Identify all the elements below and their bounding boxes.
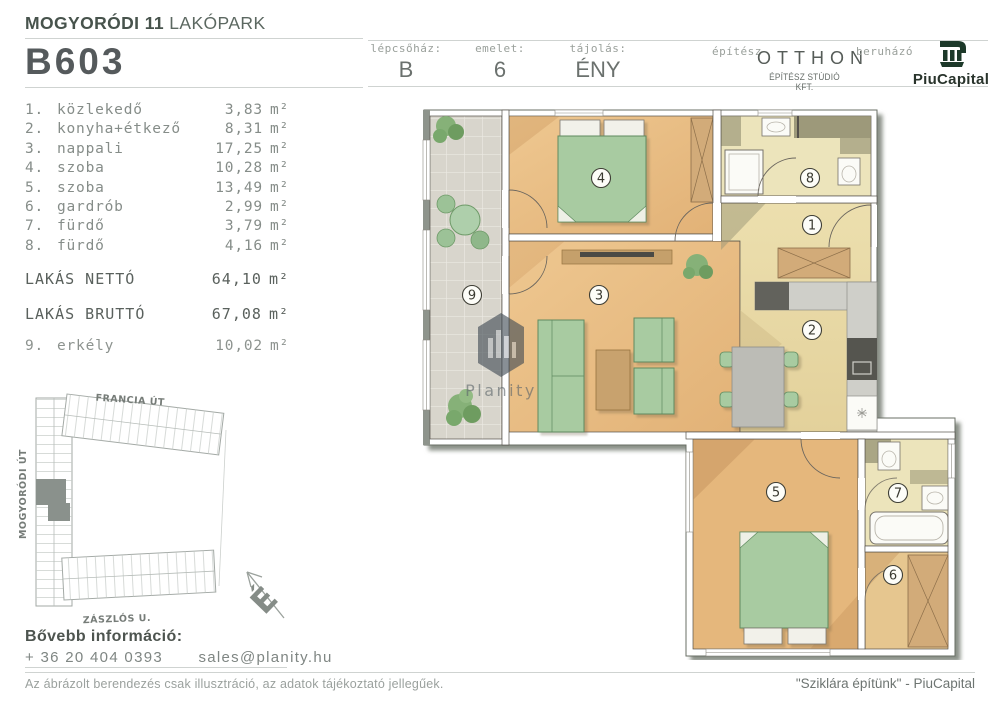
gross-area: 67,08 <box>212 305 262 323</box>
room-name: gardrób <box>57 199 225 215</box>
gross-area-row: LAKÁS BRUTTÓ67,08m² <box>25 305 289 327</box>
floor-cell: emelet: 6 <box>452 42 548 83</box>
orientation-cell: tájolás: ÉNY <box>550 42 646 83</box>
bath7-toilet <box>878 442 900 470</box>
room-num: 8. <box>25 238 57 254</box>
plan-label-2: 2 <box>808 324 816 339</box>
bath8-toilet <box>838 158 860 185</box>
unit-code: B603 <box>25 41 125 83</box>
room-name: szoba <box>57 180 215 196</box>
room-unit: m² <box>270 238 289 254</box>
room-unit: m² <box>270 160 289 176</box>
orientation-value: ÉNY <box>550 57 646 83</box>
contact-phone: + 36 20 404 0393 <box>25 649 163 666</box>
contact-divider <box>25 667 287 668</box>
header-band-top-rule <box>368 40 988 41</box>
room-unit: m² <box>270 121 289 137</box>
project-title-bold: MOGYORÓDI 11 <box>25 13 164 33</box>
room-row: 2.konyha+étkező8,31m² <box>25 121 289 140</box>
room-unit: m² <box>270 141 289 157</box>
street-bottom-label: ZÁSZLÓS U. <box>83 612 152 626</box>
room-row: 1.közlekedő3,83m² <box>25 102 289 121</box>
piucapital-column-icon <box>928 38 974 70</box>
gross-unit: m² <box>269 305 289 323</box>
plan-label-5: 5 <box>772 486 780 501</box>
plan-label-8: 8 <box>806 172 814 187</box>
room-row: 8.fürdő4,16m² <box>25 238 289 257</box>
site-bottom-wing <box>62 550 216 600</box>
courtyard-line <box>219 430 226 586</box>
unit-code-divider <box>25 87 363 88</box>
room-num: 7. <box>25 218 57 234</box>
tv <box>580 252 654 257</box>
room-bath-8 <box>721 116 871 196</box>
staircase-label: lépcsőház: <box>358 42 454 55</box>
orientation-label: tájolás: <box>550 42 646 55</box>
room-area: 13,49 <box>215 180 263 196</box>
room-num: 5. <box>25 180 57 196</box>
room-name: konyha+étkező <box>57 121 225 137</box>
room-num: 9. <box>25 338 57 354</box>
room-unit: m² <box>270 180 289 196</box>
room-area: 3,79 <box>225 218 263 234</box>
plan-label-9: 9 <box>468 289 476 304</box>
room-bedroom-4 <box>509 116 713 234</box>
contact-email: sales@planity.hu <box>198 649 332 666</box>
room-area: 3,83 <box>225 102 263 118</box>
room-row: 5.szoba13,49m² <box>25 180 289 199</box>
room-list: 1.közlekedő3,83m² 2.konyha+étkező8,31m² … <box>25 102 289 358</box>
room-name: közlekedő <box>57 102 225 118</box>
room-wardrobe-6 <box>865 552 948 649</box>
room-num: 1. <box>25 102 57 118</box>
plan-label-4: 4 <box>597 172 605 187</box>
room-name: szoba <box>57 160 215 176</box>
compass: É <box>243 572 286 621</box>
room-num: 6. <box>25 199 57 215</box>
room-area: 10,02 <box>215 338 263 354</box>
floor-value: 6 <box>452 57 548 83</box>
footer-divider <box>25 672 975 673</box>
architect-label: építész <box>712 45 762 58</box>
net-area: 64,10 <box>212 270 262 288</box>
room-row: 7.fürdő3,79m² <box>25 218 289 237</box>
header-band-bottom-rule <box>368 86 988 87</box>
room-num: 3. <box>25 141 57 157</box>
room-name: erkély <box>57 338 215 354</box>
room-row: 6.gardrób2,99m² <box>25 199 289 218</box>
project-title: MOGYORÓDI 11 LAKÓPARK <box>25 13 266 34</box>
room-bedroom-5 <box>693 439 858 649</box>
net-label: LAKÁS NETTÓ <box>25 270 135 288</box>
armchair-2 <box>634 368 674 414</box>
room-unit: m² <box>270 102 289 118</box>
room-num: 4. <box>25 160 57 176</box>
disclaimer-text: Az ábrázolt berendezés csak illusztráció… <box>25 677 444 691</box>
staircase-value: B <box>358 57 454 83</box>
architect-subtitle: ÉPÍTÉSZ STÚDIÓ KFT. <box>761 72 848 92</box>
street-left-label: MOGYORÓDI ÚT <box>17 449 29 539</box>
room-unit: m² <box>270 338 289 354</box>
floor-label: emelet: <box>452 42 548 55</box>
room-area: 8,31 <box>225 121 263 137</box>
dining-table <box>732 347 784 427</box>
title-divider <box>25 38 363 39</box>
architect-name: OTTHON <box>757 48 852 69</box>
armchair-1 <box>634 318 674 362</box>
contact-heading: Bővebb információ: <box>25 628 182 646</box>
room-name: fürdő <box>57 218 225 234</box>
plan-label-6: 6 <box>889 569 897 584</box>
site-map: FRANCIA ÚT MOGYORÓDI ÚT ZÁSZLÓS U. É <box>12 386 304 632</box>
plan-label-3: 3 <box>595 289 603 304</box>
bath8-sink <box>762 118 790 136</box>
net-area-row: LAKÁS NETTÓ64,10m² <box>25 270 289 292</box>
developer-name: PiuCapital <box>908 71 994 88</box>
contact-line: + 36 20 404 0393 sales@planity.hu <box>25 649 333 666</box>
compass-north-letter: É <box>243 579 286 621</box>
developer-logo: PiuCapital <box>908 38 994 88</box>
coffee-table <box>596 350 630 410</box>
room-row: 3.nappali17,25m² <box>25 141 289 160</box>
room-area: 10,28 <box>215 160 263 176</box>
room-name: nappali <box>57 141 215 157</box>
room-living-3 <box>509 241 740 432</box>
plan-label-1: 1 <box>808 219 816 234</box>
floor-plan: Planity 1 2 3 4 5 6 7 8 9 <box>410 100 970 660</box>
watermark-text: Planity <box>465 381 537 400</box>
bed-room5 <box>740 532 828 644</box>
shower <box>725 150 763 194</box>
flyer-page: MOGYORÓDI 11 LAKÓPARK B603 lépcsőház: B … <box>0 0 1000 707</box>
architect-logo: OTTHON ÉPÍTÉSZ STÚDIÓ KFT. <box>757 48 852 92</box>
plan-label-7: 7 <box>894 487 902 502</box>
room-area: 4,16 <box>225 238 263 254</box>
gross-label: LAKÁS BRUTTÓ <box>25 305 145 323</box>
room-unit: m² <box>270 218 289 234</box>
hall-and-kitchen <box>720 203 877 432</box>
net-unit: m² <box>269 270 289 288</box>
room-area: 17,25 <box>215 141 263 157</box>
room-row: 4.szoba10,28m² <box>25 160 289 179</box>
project-title-light: LAKÓPARK <box>169 13 265 33</box>
room-name: fürdő <box>57 238 225 254</box>
developer-label: beruházó <box>856 45 913 58</box>
balcony-row: 9.erkély10,02m² <box>25 338 289 357</box>
fridge <box>755 282 789 310</box>
room-area: 2,99 <box>225 199 263 215</box>
staircase-cell: lépcsőház: B <box>358 42 454 83</box>
room-num: 2. <box>25 121 57 137</box>
room-unit: m² <box>270 199 289 215</box>
bath7-sink <box>922 486 948 510</box>
footer-slogan: "Sziklára építünk" - PiuCapital <box>796 676 975 691</box>
